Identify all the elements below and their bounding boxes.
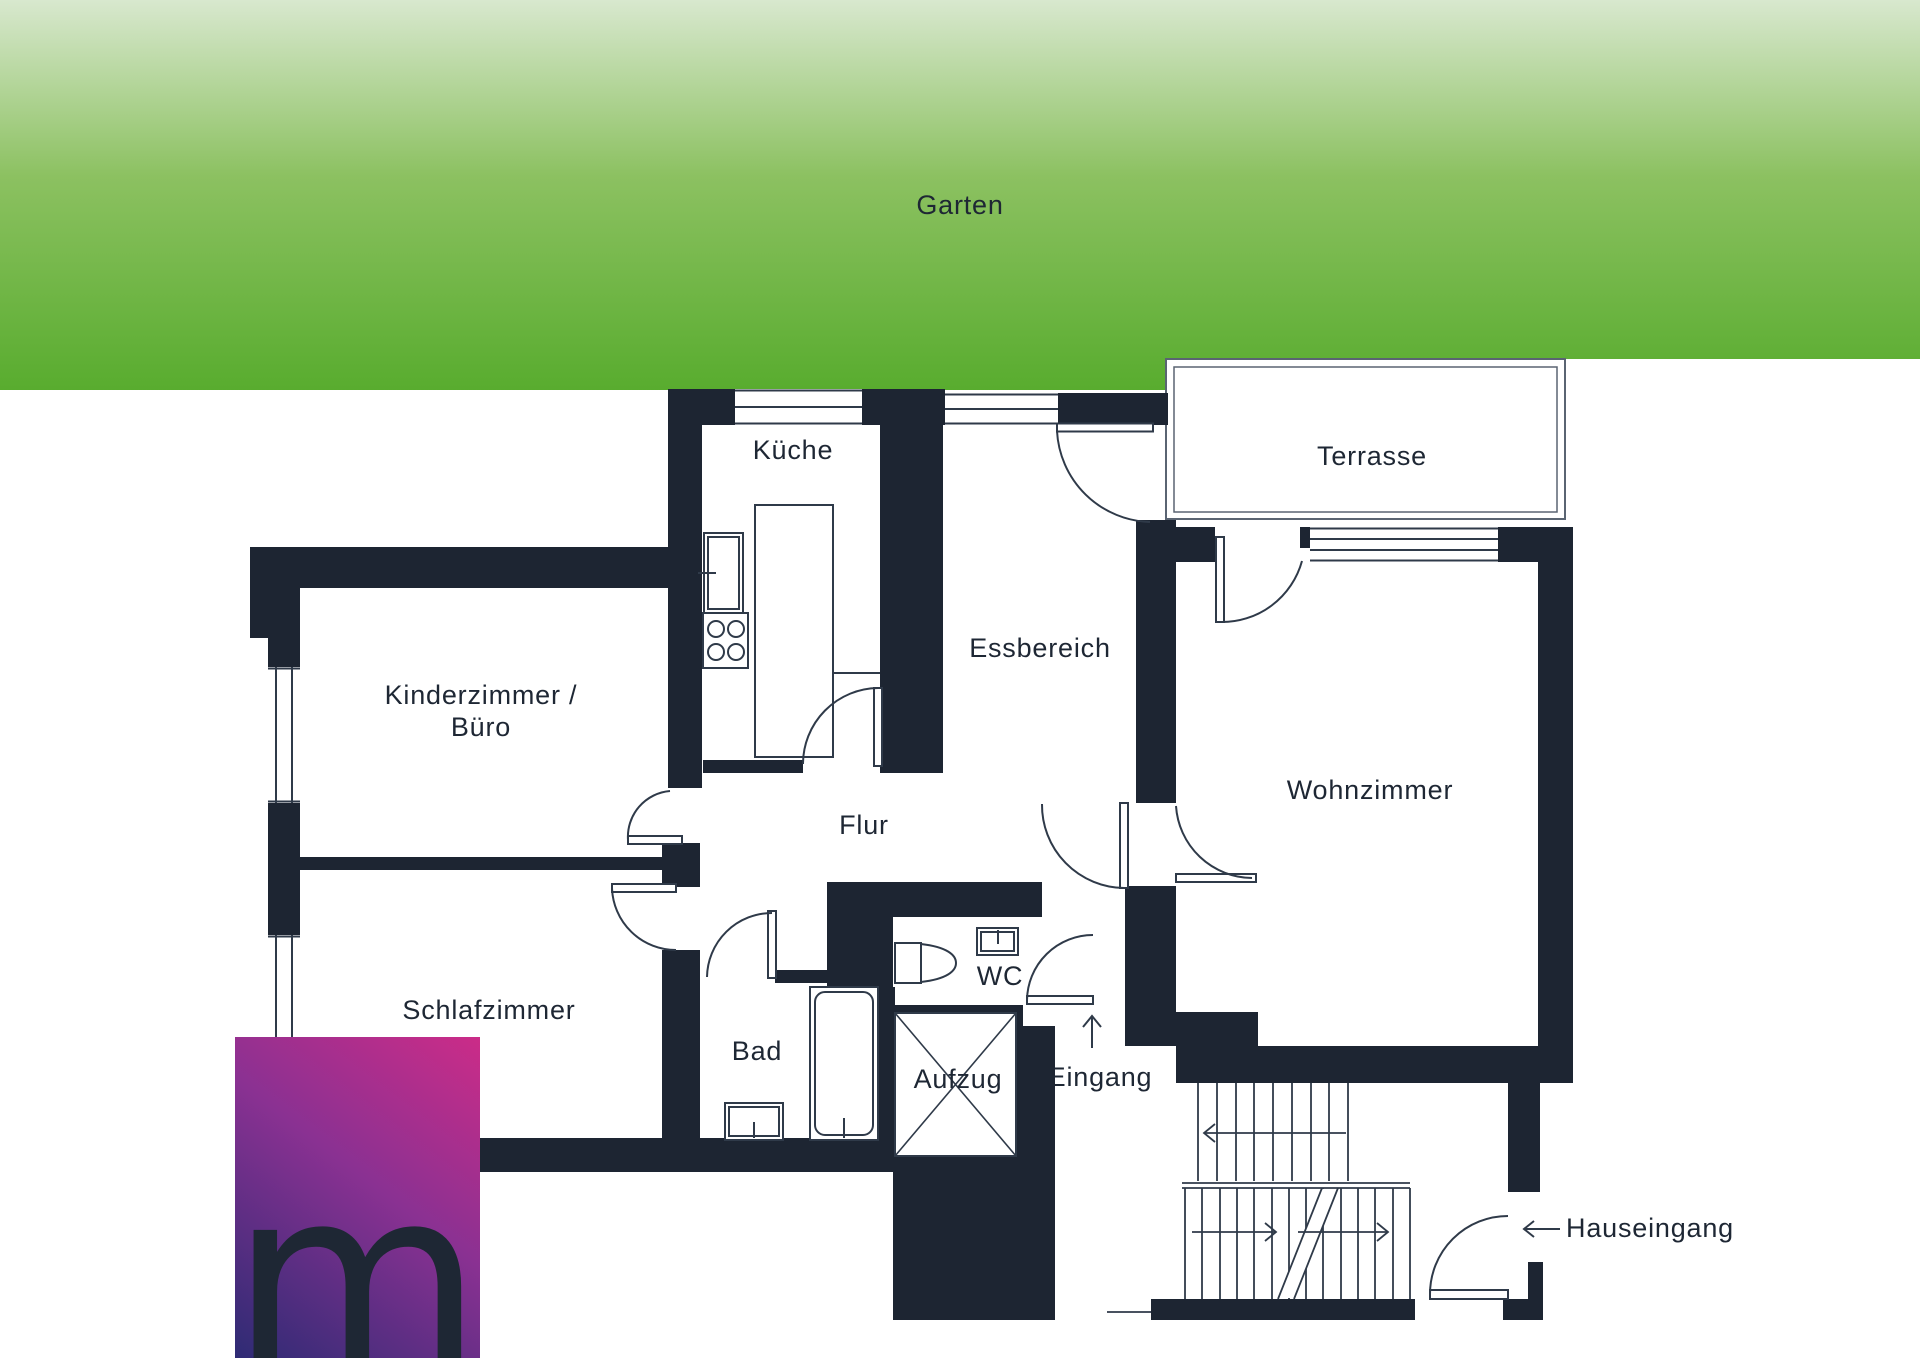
up-arrow-icon bbox=[1083, 1016, 1101, 1048]
label-wc: WC bbox=[977, 961, 1024, 991]
floor-plan-page: Garten bbox=[0, 0, 1920, 1358]
door-wc bbox=[1027, 935, 1093, 1004]
wash-basin bbox=[977, 928, 1018, 955]
stove bbox=[703, 613, 748, 668]
left-arrow-icon bbox=[1524, 1221, 1560, 1237]
label-essbereich: Essbereich bbox=[969, 633, 1111, 663]
kitchen-sink bbox=[698, 533, 743, 613]
door-bedroom bbox=[612, 884, 676, 950]
right-arrow-icon bbox=[1192, 1223, 1276, 1241]
label-schlafzimmer: Schlafzimmer bbox=[402, 995, 575, 1025]
bathroom-window bbox=[725, 1103, 783, 1140]
door-childrens-room bbox=[628, 791, 682, 844]
label-flur: Flur bbox=[839, 810, 889, 840]
door-terrace-living bbox=[1216, 537, 1302, 622]
door-house-entrance bbox=[1430, 1216, 1508, 1299]
garden-label: Garten bbox=[916, 190, 1003, 220]
label-terrasse: Terrasse bbox=[1317, 441, 1427, 471]
label-kinderzimmer-line1: Kinderzimmer / bbox=[385, 680, 578, 710]
staircase bbox=[1107, 1083, 1410, 1312]
label-wohnzimmer: Wohnzimmer bbox=[1287, 775, 1454, 805]
door-living-room bbox=[1176, 806, 1256, 882]
terrace bbox=[1166, 359, 1565, 519]
stairs-upper-flight bbox=[1198, 1083, 1348, 1181]
door-dining-entry bbox=[1042, 803, 1128, 888]
label-aufzug: Aufzug bbox=[914, 1064, 1003, 1094]
toilet bbox=[895, 943, 956, 983]
label-eingang: Eingang bbox=[1048, 1062, 1153, 1092]
living-room-window bbox=[1310, 527, 1498, 562]
label-kueche: Küche bbox=[753, 435, 834, 465]
left-window-upper bbox=[268, 667, 300, 803]
door-terrace-dining bbox=[1057, 424, 1153, 523]
kitchen-window bbox=[735, 389, 862, 425]
brand-logo: m bbox=[230, 1037, 484, 1358]
logo-letter: m bbox=[230, 1132, 484, 1358]
bathtub bbox=[810, 987, 878, 1140]
dining-window bbox=[945, 393, 1058, 425]
label-kinderzimmer-line2: Büro bbox=[451, 712, 511, 742]
floor-plan-svg: Garten bbox=[0, 0, 1920, 1358]
label-bad: Bad bbox=[732, 1036, 782, 1066]
left-arrow-icon bbox=[1204, 1124, 1346, 1142]
label-hauseingang: Hauseingang bbox=[1566, 1213, 1734, 1243]
door-kitchen bbox=[803, 688, 882, 766]
door-bathroom bbox=[707, 911, 776, 978]
